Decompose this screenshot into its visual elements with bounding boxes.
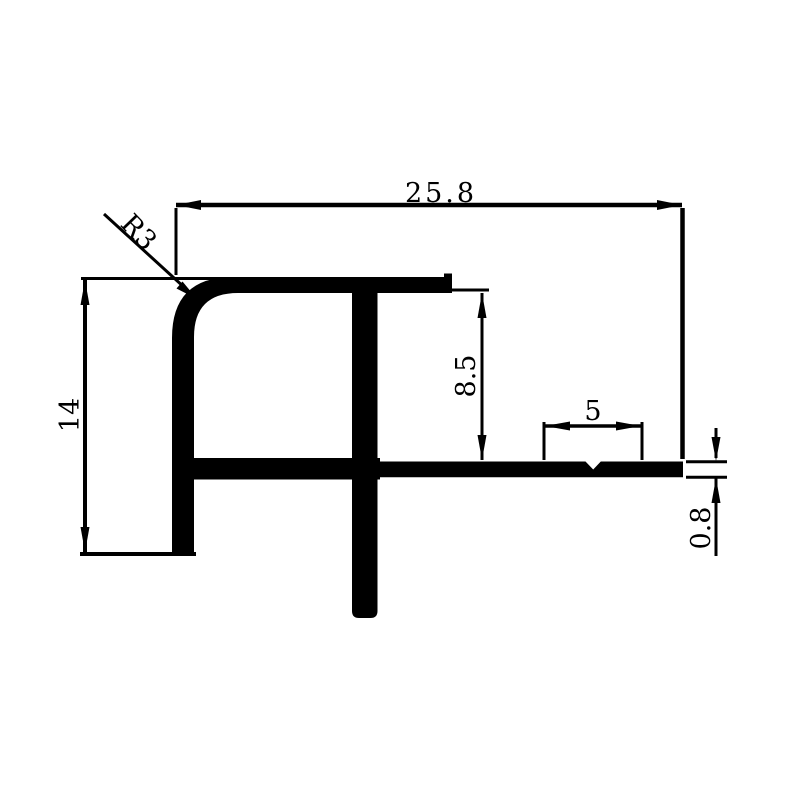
dim-overall-width: 25.8	[176, 178, 683, 459]
dim-overall-width-arrow-left	[176, 200, 201, 210]
dim-wing-thickness-arrow-down	[712, 437, 721, 461]
dim-channel-depth: 8.5	[451, 290, 489, 460]
profile-body	[172, 274, 683, 619]
profile-base-flange	[176, 458, 380, 480]
dim-overall-height-arrow-bottom	[81, 527, 90, 552]
profile-top-flange-and-leg	[172, 274, 452, 556]
dim-punch-width: 5	[544, 396, 642, 460]
dim-overall-height-arrow-top	[81, 280, 90, 305]
dim-corner-radius: R3	[104, 208, 197, 299]
dim-wing-thickness: 0.8	[686, 428, 727, 556]
dim-wing-thickness-arrow-up	[712, 478, 721, 503]
profile-stem	[352, 280, 378, 618]
dim-punch-width-label: 5	[584, 396, 601, 427]
dim-corner-radius-label: R3	[114, 208, 162, 257]
dim-overall-width-arrow-right	[657, 200, 682, 210]
dim-punch-width-arrow-left	[545, 422, 570, 431]
dim-overall-height: 14	[55, 279, 237, 555]
dim-overall-width-label: 25.8	[405, 178, 477, 209]
dim-punch-width-arrow-right	[616, 422, 641, 431]
dim-channel-depth-arrow-bottom	[478, 435, 487, 460]
dim-overall-height-label: 14	[55, 398, 86, 432]
dim-channel-depth-arrow-top	[478, 293, 487, 318]
dim-wing-thickness-label: 0.8	[686, 507, 717, 550]
profile-cross-section-drawing: 25.8 R3 14 8.5	[0, 0, 800, 800]
technical-drawing-canvas: 25.8 R3 14 8.5	[0, 0, 800, 800]
profile-anchor-wing	[377, 462, 683, 478]
dim-channel-depth-label: 8.5	[451, 355, 482, 398]
